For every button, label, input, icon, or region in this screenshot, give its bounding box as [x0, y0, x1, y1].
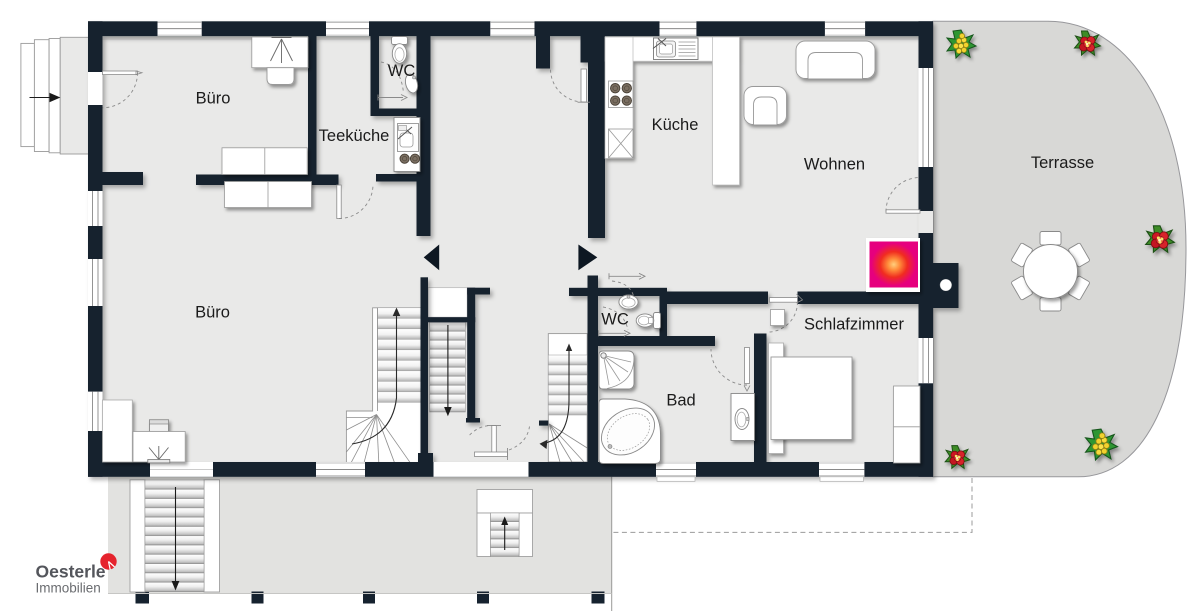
svg-text:Oesterle: Oesterle [36, 562, 106, 582]
svg-text:Wohnen: Wohnen [804, 156, 865, 174]
svg-text:Teeküche: Teeküche [319, 127, 390, 145]
svg-text:Immobilien: Immobilien [36, 581, 101, 596]
svg-text:Bad: Bad [666, 392, 695, 410]
svg-text:Büro: Büro [196, 90, 231, 108]
svg-text:Terrasse: Terrasse [1031, 154, 1094, 172]
svg-text:WC: WC [388, 62, 416, 80]
svg-text:Küche: Küche [652, 116, 699, 134]
svg-text:Schlafzimmer: Schlafzimmer [804, 316, 904, 334]
svg-text:Büro: Büro [195, 304, 230, 322]
svg-text:WC: WC [601, 311, 629, 329]
